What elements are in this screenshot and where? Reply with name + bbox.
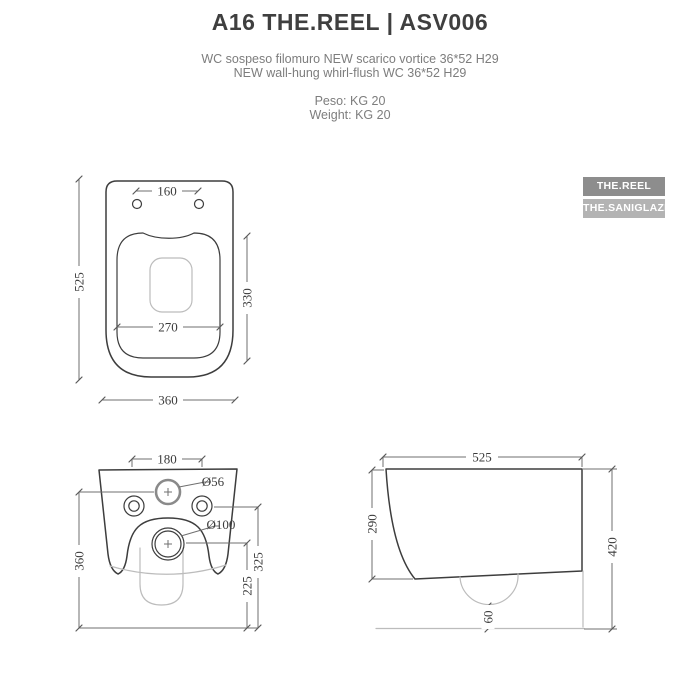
top-view-bowl-outline [150, 258, 192, 312]
dim-label-rear-hole-spacing-group: 180 [152, 452, 182, 467]
dim-label-inlet-diameter: Ø56 [202, 474, 225, 489]
dim-label-side-depth-group: 525 [466, 450, 498, 465]
dim-label-total-height: 420 [605, 537, 620, 557]
dim-label-bottom-gap: 60 [481, 611, 496, 624]
technical-drawings: 160 525 330 270 360 [0, 0, 700, 700]
dim-label-inlet-height: 360 [72, 551, 87, 571]
dim-label-front-height: 290 [365, 514, 380, 534]
dim-label-outlet-diameter: Ø100 [207, 517, 236, 532]
top-view-body-outline [106, 181, 233, 377]
dim-label-total-depth: 525 [72, 272, 87, 292]
dim-label-total-height-group: 420 [605, 531, 620, 563]
top-view-drawing: 160 525 330 270 360 [72, 176, 255, 408]
dim-label-outlet-height-group: 225 [240, 570, 255, 602]
rear-view-fixing-hole-right-inner [197, 501, 207, 511]
dim-label-hole-spacing-group: 160 [152, 184, 182, 199]
dim-label-side-depth: 525 [472, 450, 492, 465]
top-view-seat-hole-right [195, 200, 204, 209]
side-view-body-outline [386, 469, 582, 579]
dim-label-outlet-height: 225 [240, 576, 255, 596]
dim-label-seat-width: 270 [158, 320, 178, 335]
dim-label-seat-depth-group: 330 [240, 282, 255, 314]
dim-label-bottom-gap-group: 60 [481, 605, 496, 629]
side-view-trap-arc [460, 574, 518, 605]
dim-label-front-height-group: 290 [365, 508, 380, 540]
dim-label-seat-depth: 330 [240, 288, 255, 308]
dim-label-holes-height: 325 [251, 552, 266, 572]
dim-label-total-width-group: 360 [153, 393, 183, 408]
dim-label-seat-width-group: 270 [153, 320, 183, 335]
rear-view-drawing: 180 Ø56 Ø100 360 325 225 [72, 452, 266, 632]
rear-view-fixing-hole-left-inner [129, 501, 139, 511]
dim-label-total-depth-group: 525 [72, 266, 87, 298]
rear-view-trap-outline [140, 548, 183, 605]
rear-view-fixing-hole-left-outer [124, 496, 144, 516]
dim-label-rear-hole-spacing: 180 [157, 452, 177, 467]
dim-line-outlet-height [186, 543, 247, 628]
dim-ticks-top-view [76, 176, 250, 403]
dim-label-total-width: 360 [158, 393, 178, 408]
top-view-seat-outline [117, 233, 220, 358]
spec-sheet-page: { "header": { "title": "A16 THE.REEL | A… [0, 0, 700, 700]
rear-view-fixing-hole-right-outer [192, 496, 212, 516]
rear-view-hidden-bottom-edge [110, 565, 226, 574]
side-view-drawing: 525 290 420 60 [365, 450, 620, 633]
dim-line-inlet-height [79, 492, 154, 628]
dim-label-inlet-height-group: 360 [72, 545, 87, 577]
dim-label-hole-spacing: 160 [157, 184, 177, 199]
top-view-seat-hole-left [133, 200, 142, 209]
